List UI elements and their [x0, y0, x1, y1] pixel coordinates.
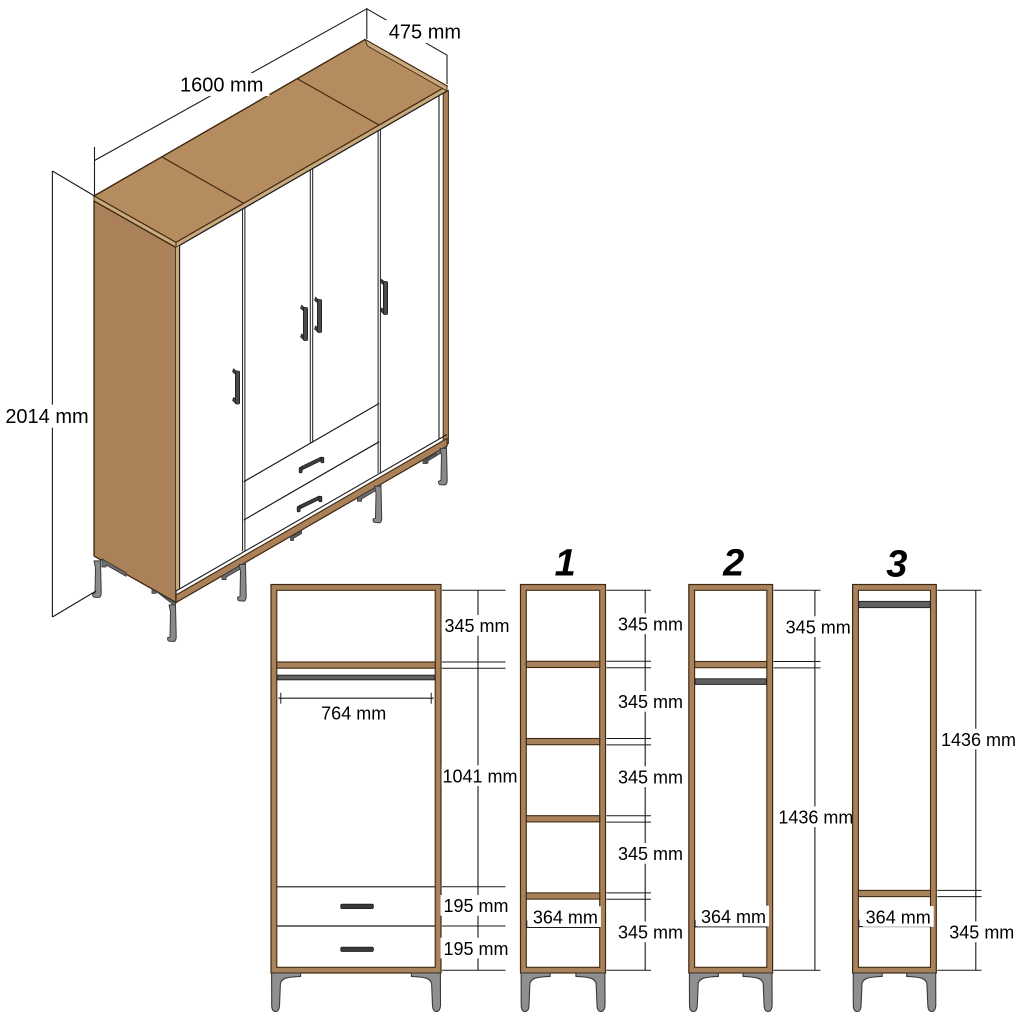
- svg-text:1: 1: [555, 542, 576, 584]
- svg-text:364 mm: 364 mm: [701, 907, 766, 927]
- svg-text:764 mm: 764 mm: [321, 704, 386, 724]
- svg-text:475 mm: 475 mm: [389, 22, 461, 44]
- svg-text:1436 mm: 1436 mm: [941, 730, 1016, 750]
- svg-text:1436 mm: 1436 mm: [778, 808, 853, 828]
- svg-text:2: 2: [722, 542, 744, 584]
- svg-text:1041 mm: 1041 mm: [442, 767, 517, 787]
- svg-text:1600 mm: 1600 mm: [180, 75, 263, 97]
- svg-text:195 mm: 195 mm: [443, 896, 508, 916]
- svg-text:345 mm: 345 mm: [786, 618, 851, 638]
- svg-text:3: 3: [886, 544, 907, 586]
- svg-text:345 mm: 345 mm: [444, 616, 509, 636]
- svg-text:345 mm: 345 mm: [618, 923, 683, 943]
- svg-text:345 mm: 345 mm: [618, 844, 683, 864]
- svg-text:364 mm: 364 mm: [533, 908, 598, 928]
- svg-text:345 mm: 345 mm: [618, 692, 683, 712]
- svg-text:195 mm: 195 mm: [443, 939, 508, 959]
- svg-text:345 mm: 345 mm: [949, 923, 1014, 943]
- svg-text:345 mm: 345 mm: [618, 615, 683, 635]
- svg-text:345 mm: 345 mm: [618, 768, 683, 788]
- svg-text:2014 mm: 2014 mm: [5, 406, 88, 428]
- svg-text:364 mm: 364 mm: [866, 907, 931, 927]
